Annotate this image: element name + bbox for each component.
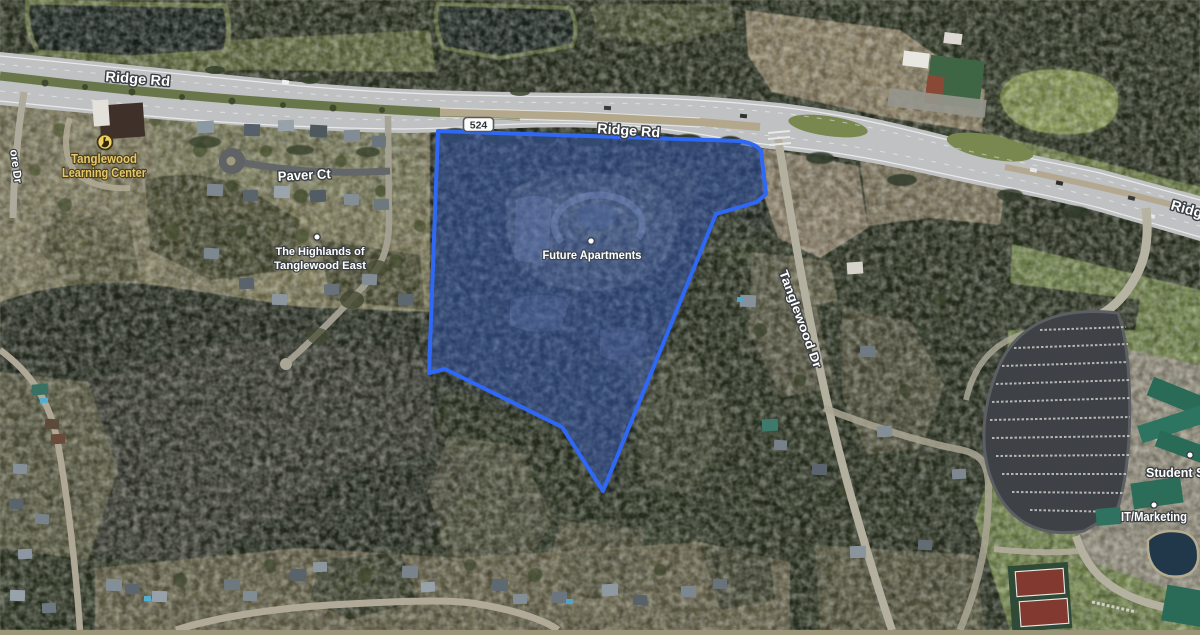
svg-text:Tanglewood East: Tanglewood East: [274, 260, 366, 272]
svg-text:Future Apartments: Future Apartments: [543, 250, 642, 262]
svg-text:The Highlands of: The Highlands of: [276, 246, 365, 258]
svg-text:524: 524: [470, 120, 488, 132]
svg-text:Tanglewood: Tanglewood: [71, 152, 137, 166]
svg-text:IT/Marketing: IT/Marketing: [1121, 510, 1187, 524]
svg-text:Student Servic: Student Servic: [1146, 466, 1200, 480]
svg-text:Paver Ct: Paver Ct: [277, 166, 331, 184]
svg-text:Learning Center: Learning Center: [62, 166, 146, 180]
